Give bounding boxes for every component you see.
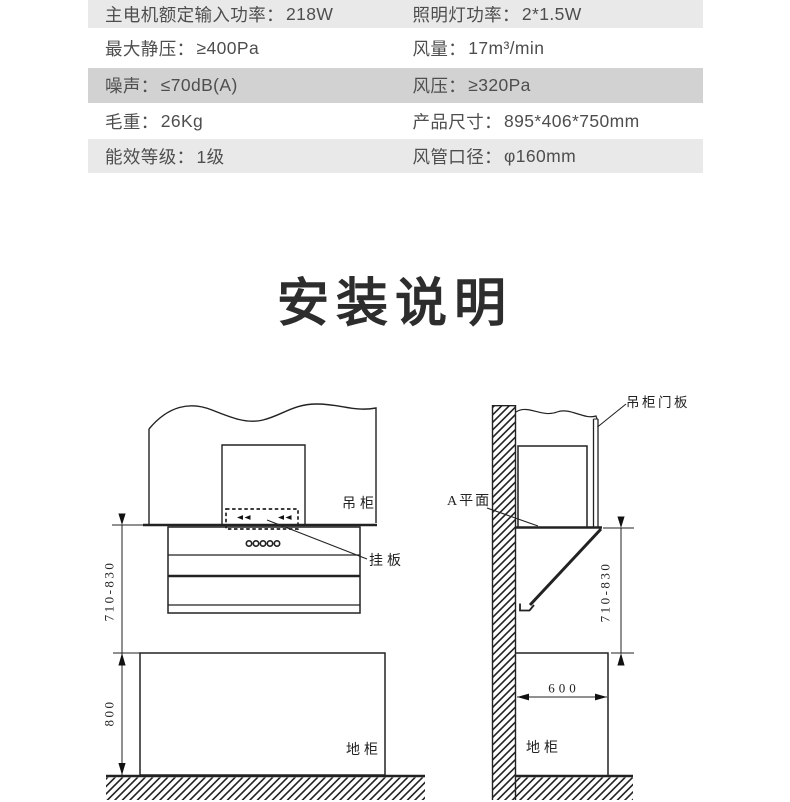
left-dimension-lines xyxy=(113,514,140,776)
door-panel-label: 吊柜门板 xyxy=(626,396,690,410)
right-dimension-lines xyxy=(517,517,634,701)
height-range-label-right: 710-830 xyxy=(599,562,612,623)
ground-left xyxy=(106,776,425,800)
ground-right xyxy=(516,776,633,800)
countertop-height-label: 800 xyxy=(103,700,116,727)
depth-label: 600 xyxy=(548,682,580,695)
floor-cabinet-label-right: 地柜 xyxy=(526,742,562,756)
page: 主电机额定输入功率： 218W 照明灯功率： 2*1.5W 最大静压： ≥400… xyxy=(0,0,790,802)
mount-plate-hooks xyxy=(237,515,292,520)
hood-front-view xyxy=(112,404,385,775)
wall-hatch xyxy=(493,405,516,800)
floor-cabinet-label-left: 地柜 xyxy=(346,744,382,758)
cabinet-label: 吊柜 xyxy=(342,498,378,512)
hood-buttons xyxy=(246,541,279,546)
a-plane-label: A平面 xyxy=(447,495,491,509)
height-range-label-left: 710-830 xyxy=(103,561,116,622)
mount-plate-label: 挂板 xyxy=(369,555,405,569)
